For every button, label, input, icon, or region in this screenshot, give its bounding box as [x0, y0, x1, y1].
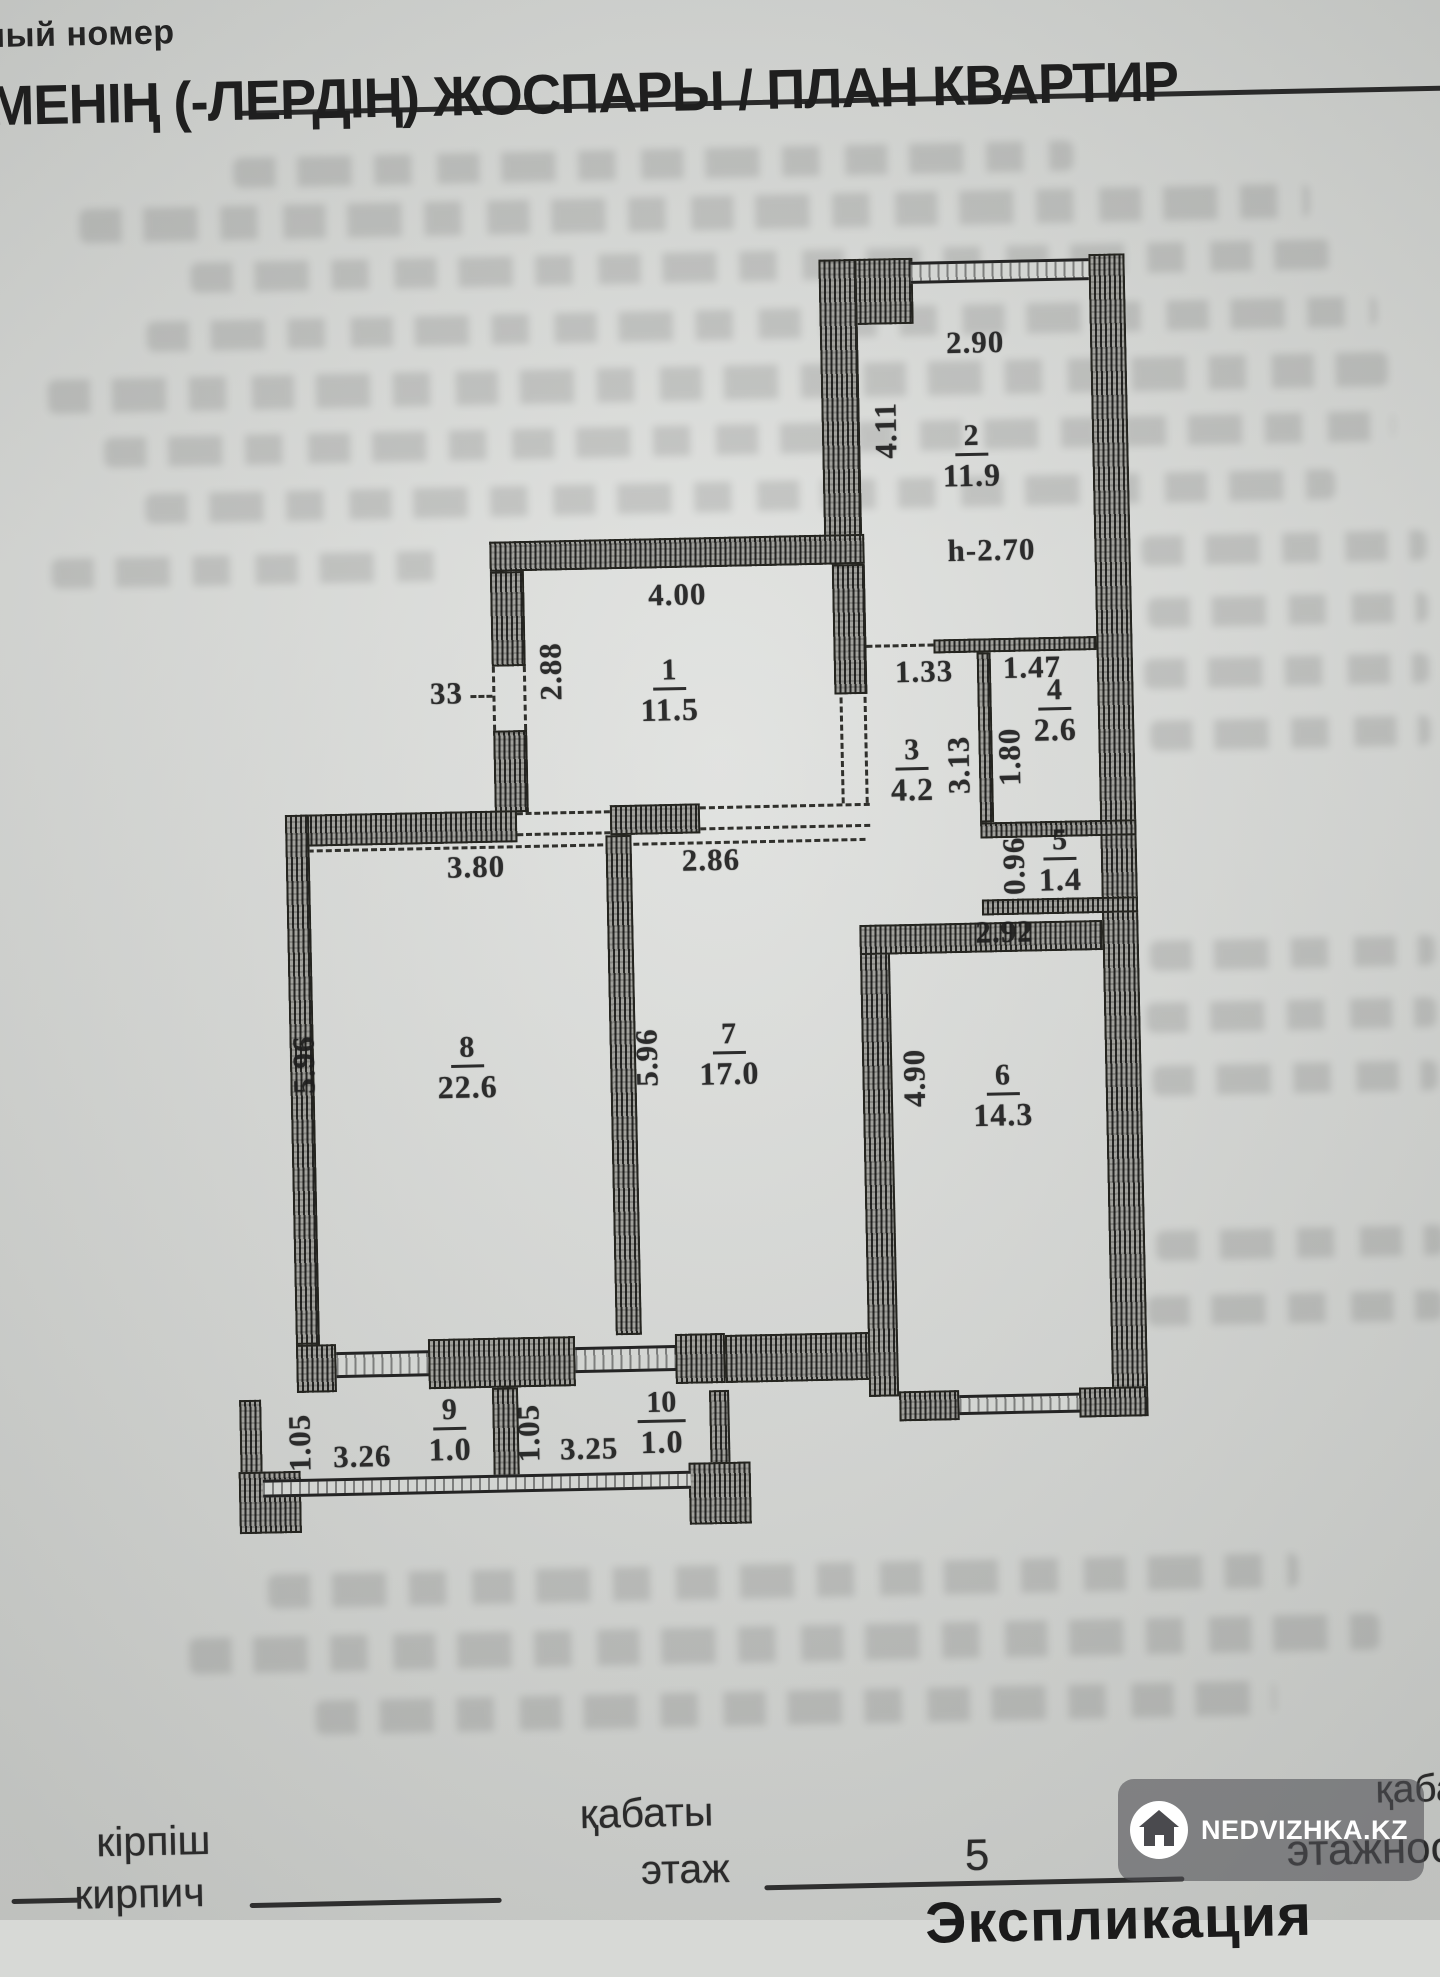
room-6-label: 6 14.3 [972, 1059, 1034, 1134]
bleed-through-text [79, 183, 1309, 243]
form-underline [250, 1898, 502, 1908]
next-section-title-partial: Экспликация [925, 1882, 1313, 1957]
room-7-number: 7 [712, 1018, 746, 1054]
dim-room1-window: 33 [429, 675, 463, 712]
bleed-through-text [48, 352, 1388, 414]
bleed-through-text [147, 296, 1377, 352]
dim-room1-width: 4.00 [648, 576, 707, 613]
wall-material-label-kk: кірпіш [96, 1817, 211, 1866]
wall-segment [675, 1333, 726, 1384]
window-band [263, 1471, 691, 1498]
wall-segment [859, 924, 899, 1397]
bleed-through-text [1148, 592, 1429, 628]
bleed-through-text [233, 140, 1073, 188]
wall-segment [818, 259, 862, 540]
bleed-through-text [1141, 530, 1427, 566]
room-3-label: 3 4.2 [890, 734, 935, 808]
bleed-through-text [1152, 1060, 1438, 1096]
dim-room6-depth: 4.90 [896, 1048, 933, 1107]
dim-room7-width: 2.86 [681, 842, 740, 879]
dim-room9-depth: 1.05 [281, 1413, 318, 1472]
floor-label-kk: қабаты [579, 1788, 713, 1838]
scanned-page: ный номер ЛМЕНІҢ (-ЛЕРДІҢ) ЖОСПАРЫ / ПЛА… [0, 0, 1440, 1935]
wall-segment [1079, 1386, 1149, 1417]
room-9-label: 9 1.0 [428, 1394, 473, 1468]
wall-segment [899, 1390, 960, 1421]
wall-segment [489, 534, 865, 572]
room-2-label: 2 11.9 [942, 419, 1002, 494]
door-opening [517, 810, 610, 836]
wall-segment [610, 803, 701, 835]
nedvizhka-watermark: NEDVIZHKA.KZ [1118, 1779, 1424, 1881]
bleed-through-text [1150, 935, 1436, 971]
room-6-area: 14.3 [973, 1096, 1034, 1133]
room-10-area: 1.0 [638, 1424, 687, 1461]
wall-segment [428, 1336, 576, 1389]
bleed-through-text [1144, 653, 1430, 689]
room-4-area: 2.6 [1033, 711, 1077, 748]
window-band [910, 258, 1090, 284]
room-6-number: 6 [986, 1059, 1020, 1095]
bleed-through-text [190, 239, 1330, 293]
window-band [959, 1393, 1079, 1416]
bleed-through-text [189, 1613, 1379, 1674]
room-8-number: 8 [450, 1031, 484, 1067]
room-1-label: 1 11.5 [639, 654, 699, 729]
window-opening [492, 666, 527, 731]
room-8-area: 22.6 [437, 1069, 498, 1106]
dim-room1-depth: 2.88 [532, 642, 569, 701]
room-2-number: 2 [954, 420, 988, 456]
dim-room10-width: 3.25 [560, 1430, 619, 1467]
room-10-label: 10 1.0 [637, 1386, 687, 1460]
bleed-through-text [51, 551, 452, 589]
room-9-number: 9 [433, 1394, 467, 1430]
wall-segment [832, 564, 868, 695]
floor-label-ru: этаж [641, 1845, 731, 1894]
photographed-document: { "document": { "top_left_partial": "ный… [0, 0, 1440, 1920]
wall-segment [689, 1461, 752, 1524]
wall-segment [285, 810, 518, 847]
dim-room5-depth: 0.96 [995, 836, 1032, 895]
room-3-number: 3 [895, 734, 929, 770]
wall-segment [725, 1332, 871, 1383]
room-5-area: 1.4 [1039, 861, 1083, 898]
room-1-number: 1 [652, 654, 686, 690]
dimension-line [470, 695, 492, 698]
room-3-area: 4.2 [891, 771, 935, 808]
bleed-through-text [1150, 715, 1431, 751]
dim-room9-width: 3.26 [333, 1438, 392, 1475]
wall-segment [296, 1344, 337, 1393]
dim-room3-width: 1.33 [895, 653, 954, 690]
window-band [336, 1350, 429, 1378]
dim-room6-width: 2.92 [975, 913, 1034, 950]
room-1-area: 11.5 [640, 691, 699, 728]
bleed-through-text [1147, 1290, 1440, 1326]
room-8-label: 8 22.6 [436, 1031, 498, 1106]
form-field-number-partial: ный номер [0, 13, 175, 56]
door-opening [700, 803, 870, 831]
dimension-line [866, 643, 933, 647]
dim-room8-depth: 5.96 [285, 1035, 322, 1094]
window-band [575, 1345, 676, 1373]
bleed-through-text [104, 411, 1394, 468]
dim-room3-depth: 3.13 [940, 735, 977, 794]
dim-room8-width: 3.80 [447, 848, 506, 885]
dim-room7-depth: 5.96 [628, 1028, 665, 1087]
page-title: ЛМЕНІҢ (-ЛЕРДІҢ) ЖОСПАРЫ / ПЛАН КВАРТИР [0, 48, 1179, 139]
dim-room2-depth: 4.11 [867, 402, 904, 459]
room-9-area: 1.0 [428, 1431, 472, 1468]
dim-room10-depth: 1.05 [510, 1404, 547, 1463]
floor-value: 5 [964, 1831, 990, 1882]
wall-material-label-ru: кирпич [74, 1869, 205, 1919]
wall-segment [493, 730, 529, 813]
dim-room2-ceiling-height: h-2.70 [947, 531, 1036, 569]
wall-segment [490, 571, 526, 667]
door-opening [840, 697, 869, 804]
watermark-text: NEDVIZHKA.KZ [1201, 1815, 1408, 1846]
house-icon [1130, 1801, 1188, 1859]
room-2-area: 11.9 [942, 457, 1001, 494]
form-underline [12, 1898, 82, 1904]
bleed-through-text [1156, 1225, 1440, 1261]
bleed-through-text [315, 1681, 1276, 1735]
room-5-number: 5 [1043, 824, 1077, 860]
room-10-number: 10 [637, 1386, 686, 1422]
floor-plan: 1 11.5 2 11.9 3 4.2 4 2.6 5 1.4 6 14.3 7… [0, 0, 1420, 15]
bleed-through-text [268, 1553, 1298, 1609]
room-5-label: 5 1.4 [1038, 824, 1083, 898]
bleed-through-text [145, 469, 1335, 524]
dim-room2-width: 2.90 [946, 324, 1005, 361]
room-7-label: 7 17.0 [698, 1018, 760, 1093]
wall-segment [982, 896, 1138, 915]
room-7-area: 17.0 [699, 1055, 760, 1092]
bleed-through-text [1146, 997, 1437, 1033]
dim-room4-depth: 1.80 [991, 727, 1028, 786]
dim-room4-width: 1.47 [1002, 649, 1061, 686]
